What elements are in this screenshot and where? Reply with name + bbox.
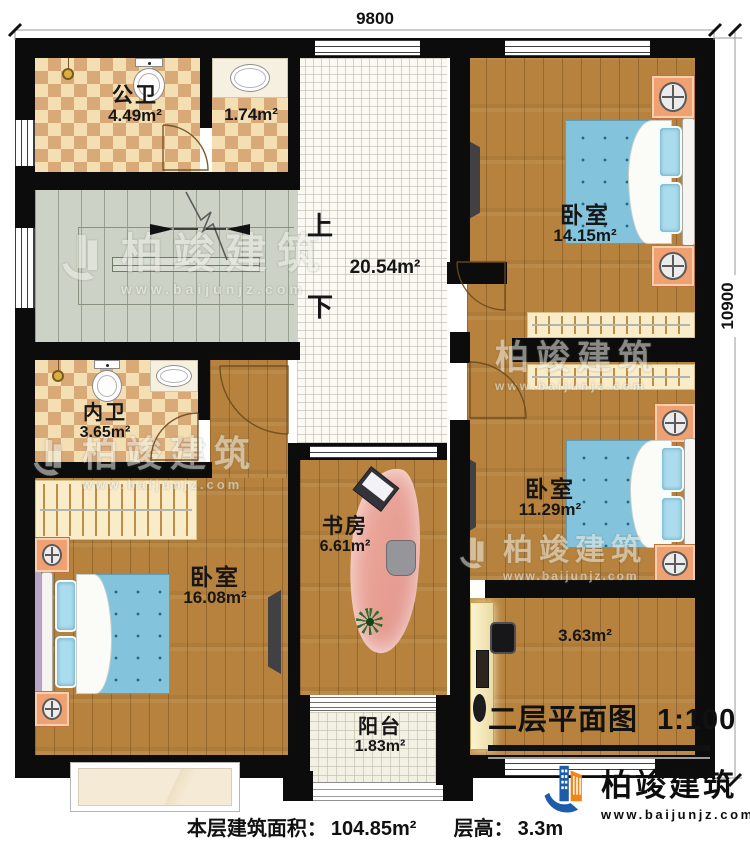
- window: [315, 40, 420, 56]
- wall: [485, 580, 695, 598]
- window: [310, 446, 437, 458]
- wall: [15, 462, 212, 478]
- ceiling-lamp-icon: [62, 68, 74, 80]
- nightstand: [652, 76, 694, 118]
- company-name: 柏竣建筑: [601, 760, 750, 805]
- bed-blanket: [76, 574, 112, 694]
- room-area: 16.08m²: [160, 589, 270, 608]
- room-area: 4.49m²: [90, 107, 180, 126]
- room-area: 11.29m²: [500, 501, 600, 520]
- room-name: 公卫: [90, 84, 180, 107]
- window: [15, 120, 35, 166]
- stool: [490, 622, 516, 654]
- nightstand: [652, 246, 694, 286]
- window: [505, 40, 650, 56]
- wall: [200, 58, 212, 128]
- dresser-item: [473, 694, 486, 722]
- wardrobe: [527, 364, 695, 390]
- toilet-symbol: [92, 360, 122, 402]
- title-block: 二层平面图 1:100: [488, 696, 710, 759]
- pillow: [55, 580, 77, 632]
- room-name: 内卫: [55, 402, 155, 424]
- sink-bowl: [230, 64, 270, 92]
- wall: [15, 172, 300, 190]
- room-area: 1.74m²: [215, 106, 287, 125]
- hall-floor: [297, 58, 447, 443]
- nightstand: [655, 545, 695, 582]
- room-area: 14.15m²: [530, 227, 640, 246]
- west-corridor-floor: [210, 360, 288, 478]
- pillow: [660, 446, 684, 492]
- bay-window-sill: [78, 768, 232, 806]
- nightstand: [35, 538, 69, 572]
- wall: [695, 38, 715, 778]
- nightstand: [655, 404, 695, 442]
- room-area: 20.54m²: [325, 258, 445, 279]
- hall-down-label: 下: [302, 293, 338, 322]
- ceiling-lamp-icon: [52, 370, 64, 382]
- footer-stats: 本层建筑面积：104.85m² 层高：3.3m: [0, 812, 750, 841]
- wardrobe: [35, 480, 197, 540]
- room-area: 3.65m²: [55, 424, 155, 442]
- floor-plan: 柏竣建筑 www.baijunjz.com 柏竣建筑 www.baijunjz.…: [0, 0, 750, 843]
- wall: [15, 342, 300, 360]
- wall: [288, 38, 300, 190]
- wall: [512, 338, 695, 362]
- wall: [450, 332, 470, 363]
- room-name: 书房: [300, 515, 390, 538]
- bed-headboard: [682, 118, 695, 246]
- floor-area-value: 104.85m²: [331, 818, 417, 840]
- floor-height-value: 3.3m: [518, 818, 564, 840]
- room-area: 6.61m²: [300, 538, 390, 556]
- plant-icon: [356, 608, 383, 635]
- room-area: 3.63m²: [540, 627, 630, 646]
- drawing-title: 二层平面图: [488, 704, 638, 736]
- room-name: 卧室: [530, 203, 640, 228]
- desk-chair: [386, 540, 416, 576]
- wall: [447, 262, 507, 284]
- dresser-item: [476, 650, 489, 688]
- window: [15, 228, 35, 308]
- pillow: [658, 182, 682, 234]
- sliding-door: [308, 697, 438, 711]
- wall: [198, 342, 210, 420]
- floor-area-label: 本层建筑面积：: [187, 818, 327, 840]
- title-rule-thick: [488, 745, 710, 751]
- room-name: 卧室: [500, 477, 600, 502]
- wardrobe: [527, 312, 695, 338]
- pillow: [660, 496, 684, 542]
- stair-handrail: [112, 257, 260, 272]
- balcony-post: [443, 771, 473, 801]
- room-name: 卧室: [160, 565, 270, 590]
- floor-height-label: 层高：: [454, 818, 514, 840]
- sink-bowl: [156, 365, 192, 387]
- dimension-width: 9800: [335, 9, 415, 29]
- balcony-post: [283, 771, 313, 801]
- title-rule-thin: [488, 757, 710, 759]
- hall-up-label: 上: [302, 212, 338, 241]
- balcony-railing: [311, 782, 445, 801]
- pillow: [658, 126, 682, 178]
- nightstand: [35, 692, 69, 726]
- pillow: [55, 636, 77, 688]
- room-area: 1.83m²: [340, 738, 420, 756]
- wall: [450, 58, 470, 262]
- bed-headboard: [41, 572, 53, 698]
- room-name: 阳台: [340, 716, 420, 738]
- drawing-scale: 1:100: [657, 704, 736, 736]
- dimension-height: 10900: [718, 275, 738, 337]
